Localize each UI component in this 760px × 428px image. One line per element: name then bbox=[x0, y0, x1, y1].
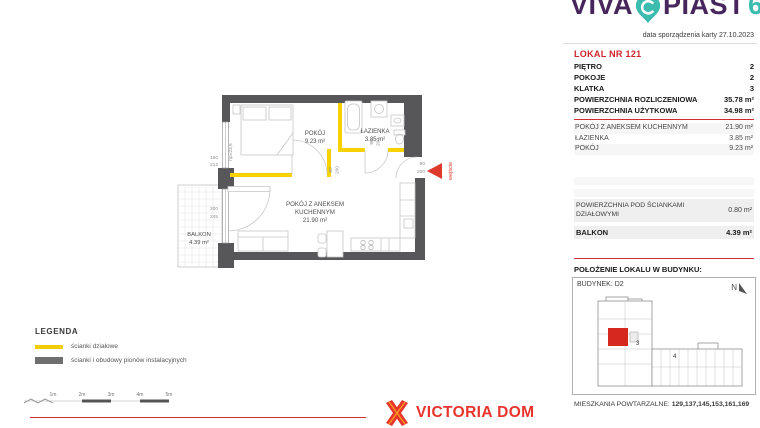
header-rule bbox=[563, 43, 757, 44]
legend-item: ścianki działowe bbox=[35, 343, 187, 350]
bathroom-label: ŁAZIENKA bbox=[360, 129, 389, 135]
living-area: 21.90 m² bbox=[303, 217, 327, 224]
logo-word-viva: VIVA bbox=[570, 0, 633, 21]
partition-wall-swatch bbox=[35, 345, 63, 349]
victoria-dom-x-icon bbox=[384, 400, 410, 426]
highlighted-unit bbox=[608, 328, 628, 346]
balcony-area: 4.39 m² bbox=[189, 240, 209, 246]
footer-divider bbox=[30, 417, 366, 418]
viva-piast-logo: VIVA PIAST 6 bbox=[570, 0, 760, 24]
floor-plan: POKÓJ 9.23 m² ŁAZIENKA 3.85 m² POKÓJ Z A… bbox=[175, 85, 465, 310]
scale-label-3m: 3m bbox=[108, 392, 115, 398]
attribute-label: POWIERZCHNIA UŻYTKOWA bbox=[574, 105, 677, 116]
attribute-label: KLATKA bbox=[574, 83, 604, 94]
dim-bedroom-door-h: 200 bbox=[335, 166, 341, 174]
logo-word-piast: PIAST bbox=[663, 0, 745, 21]
legend: LEGENDA ścianki działowe ścianki i obudo… bbox=[35, 327, 187, 364]
dim-balcony-w: 200 bbox=[210, 206, 218, 212]
dim-entry-h: 200 bbox=[417, 169, 425, 175]
section-rule bbox=[574, 258, 754, 259]
dim-bathroom-door-w: 80 bbox=[369, 139, 375, 145]
victoria-dom-wordmark: VICTORIA DOM bbox=[416, 404, 534, 422]
unit-info-panel: VIVA PIAST 6 data sporządzenia karty 27.… bbox=[560, 0, 760, 428]
entrance-arrow-icon bbox=[427, 163, 442, 179]
room-row: POKÓJ 9.23 m² bbox=[574, 144, 754, 155]
balcony-area-row: BALKON 4.39 m² bbox=[574, 226, 754, 239]
location-heading: POŁOŻENIE LOKALU W BUDYNKU: bbox=[574, 265, 702, 274]
entrance-label: wejście bbox=[448, 162, 454, 181]
balcony-hatch bbox=[178, 185, 222, 267]
furniture bbox=[233, 101, 415, 257]
room-row: ŁAZIENKA 3.85 m² bbox=[574, 134, 754, 145]
attribute-label: POKOJE bbox=[574, 72, 605, 83]
attribute-row: POWIERZCHNIA ROZLICZENIOWA 35.78 m² bbox=[574, 94, 754, 105]
repeat-units-note: MIESZKANIA POWTARZALNE: 129,137,145,153,… bbox=[574, 401, 749, 408]
apartment-card-page: POKÓJ 9.23 m² ŁAZIENKA 3.85 m² POKÓJ Z A… bbox=[0, 0, 760, 428]
bedroom-area: 9.23 m² bbox=[305, 139, 325, 145]
balcony-label: BALKON bbox=[187, 232, 211, 238]
attribute-value: 2 bbox=[750, 61, 754, 72]
attribute-row: POWIERZCHNIA UŻYTKOWA 34.98 m² bbox=[574, 105, 754, 116]
legend-item: ścianki i obudowy pionów instalacyjnych bbox=[35, 357, 187, 364]
scale-bar: 1m 2m 3m 4m 5m bbox=[22, 390, 182, 408]
partition-area-label: POWIERZCHNIA POD ŚCIANKAMI DZIAŁOWYMI bbox=[576, 202, 696, 219]
room-value: 3.85 m² bbox=[729, 134, 753, 145]
room-areas-list: POKÓJ Z ANEKSEM KUCHENNYM 21.90 m² ŁAZIE… bbox=[574, 123, 754, 155]
legend-item-label: ścianki i obudowy pionów instalacyjnych bbox=[71, 357, 187, 364]
living-label-2: KUCHENNYM bbox=[295, 209, 335, 216]
room-row: POKÓJ Z ANEKSEM KUCHENNYM 21.90 m² bbox=[574, 123, 754, 134]
attribute-row: KLATKA 3 bbox=[574, 83, 754, 94]
logo-number: 6 bbox=[748, 0, 760, 21]
unit-attributes: PIĘTRO 2 POKOJE 2 KLATKA 3 POWIERZCHNIA … bbox=[574, 61, 754, 116]
scale-label-5m: 5m bbox=[166, 392, 173, 398]
card-date: data sporządzenia karty 27.10.2023 bbox=[572, 32, 754, 39]
empty-row-stripe bbox=[574, 177, 754, 185]
dim-entry-w: 90 bbox=[420, 161, 426, 167]
section-rule bbox=[574, 119, 754, 120]
attribute-value: 35.78 m² bbox=[724, 94, 754, 105]
unit-number-title: LOKAL NR 121 bbox=[574, 49, 641, 59]
dim-window-w: 160 bbox=[210, 155, 218, 161]
legend-title: LEGENDA bbox=[35, 327, 187, 336]
dim-balcony-h: 245 bbox=[210, 214, 218, 220]
attribute-label: POWIERZCHNIA ROZLICZENIOWA bbox=[574, 94, 697, 105]
scale-label-2m: 2m bbox=[79, 392, 86, 398]
partition-area-row: POWIERZCHNIA POD ŚCIANKAMI DZIAŁOWYMI 0.… bbox=[574, 199, 754, 222]
scale-labels: 1m 2m 3m 4m 5m bbox=[50, 392, 173, 398]
living-label-1: POKÓJ Z ANEKSEM bbox=[286, 201, 344, 208]
shaft-wall-swatch bbox=[35, 357, 63, 364]
viva-piast-shield-icon bbox=[635, 0, 661, 24]
room-label: POKÓJ Z ANEKSEM KUCHENNYM bbox=[575, 123, 688, 134]
balcony-area-label: BALKON bbox=[576, 228, 608, 237]
attribute-label: PIĘTRO bbox=[574, 61, 602, 72]
dim-window-hp: hp=23,5 bbox=[228, 143, 234, 161]
bathroom-area: 3.85 m² bbox=[365, 137, 385, 143]
building-map-box: BUDYNEK: D2 N bbox=[572, 277, 756, 395]
attribute-row: POKOJE 2 bbox=[574, 72, 754, 83]
repeat-units-values: 129,137,145,153,161,169 bbox=[672, 401, 749, 408]
attribute-value: 2 bbox=[750, 72, 754, 83]
repeat-units-label: MIESZKANIA POWTARZALNE: bbox=[574, 401, 670, 408]
room-value: 21.90 m² bbox=[725, 123, 753, 134]
building-name: BUDYNEK: D2 bbox=[577, 281, 624, 288]
dim-bedroom-door-w: 80 bbox=[328, 167, 334, 173]
north-label: N bbox=[731, 283, 737, 292]
room-label: ŁAZIENKA bbox=[575, 134, 609, 145]
attribute-value: 3 bbox=[750, 83, 754, 94]
legend-item-label: ścianki działowe bbox=[71, 343, 118, 350]
empty-row-stripe bbox=[574, 189, 754, 197]
partition-area-value: 0.80 m² bbox=[728, 207, 752, 214]
room-value: 9.23 m² bbox=[729, 144, 753, 155]
dim-window-h: 212 bbox=[210, 162, 218, 168]
balcony-area-value: 4.39 m² bbox=[726, 228, 752, 237]
room-label: POKÓJ bbox=[575, 144, 599, 155]
bedroom-label: POKÓJ bbox=[305, 130, 325, 137]
building-minimap: 3 4 bbox=[573, 294, 756, 394]
scale-label-4m: 4m bbox=[137, 392, 144, 398]
dim-bathroom-door-h: 200 bbox=[376, 138, 382, 146]
victoria-dom-logo: VICTORIA DOM bbox=[384, 400, 534, 426]
attribute-value: 34.98 m² bbox=[724, 105, 754, 116]
attribute-row: PIĘTRO 2 bbox=[574, 61, 754, 72]
scale-label-1m: 1m bbox=[50, 392, 57, 398]
